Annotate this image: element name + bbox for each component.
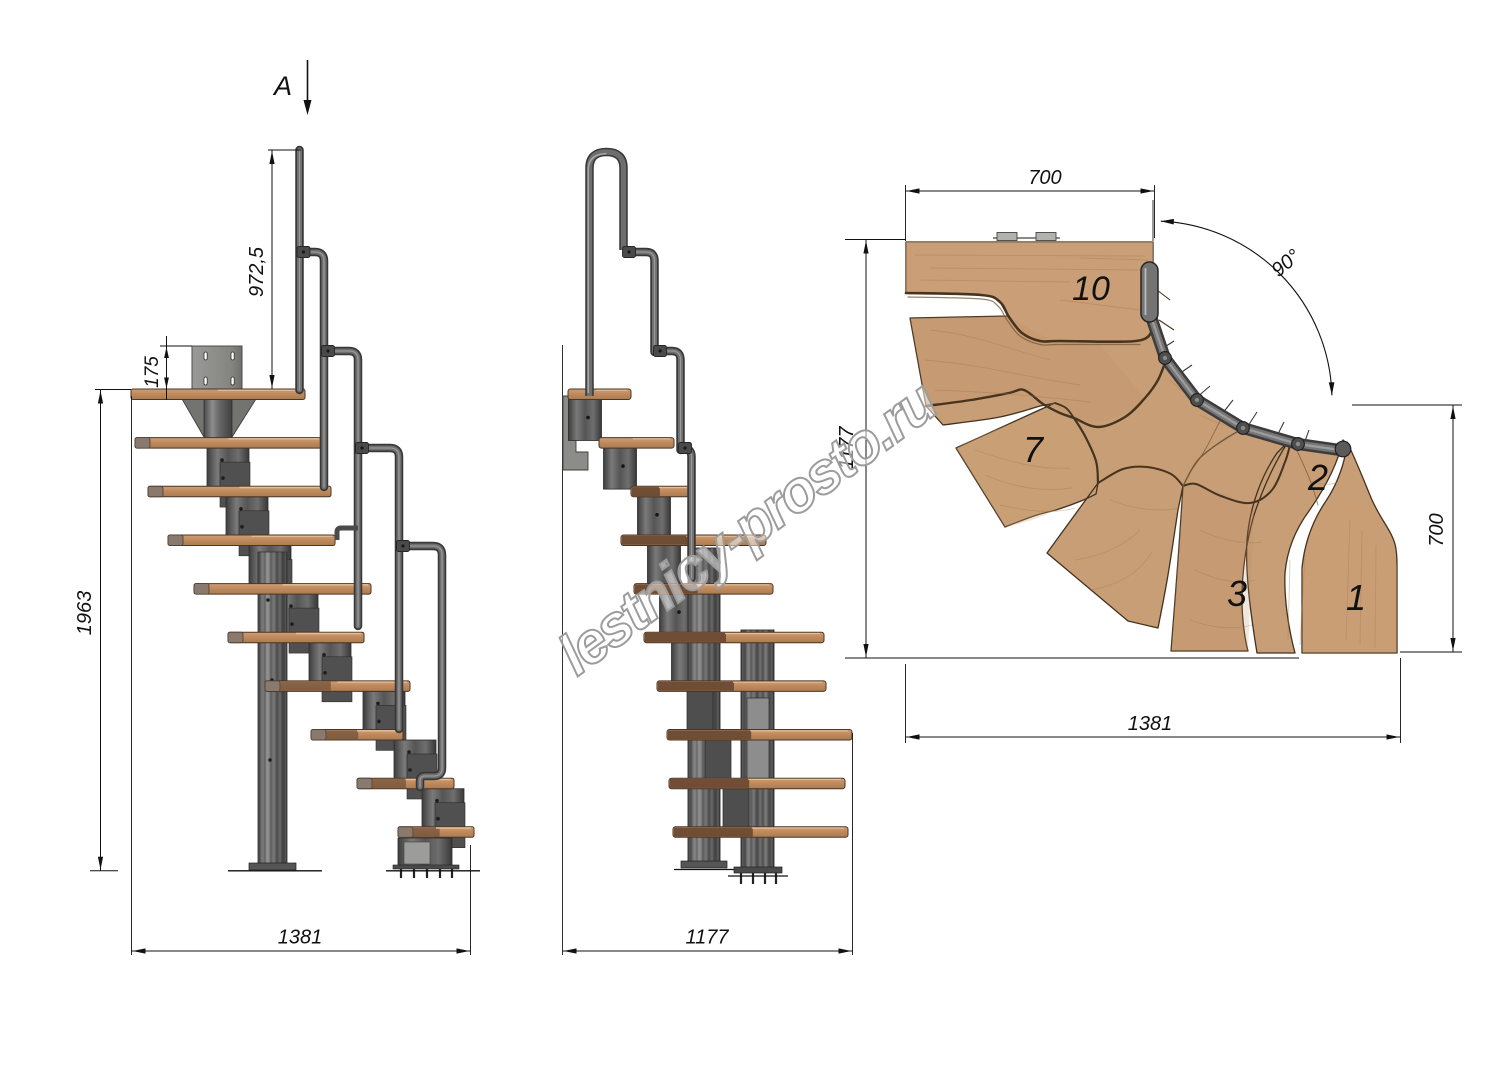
svg-text:1177: 1177: [685, 927, 729, 949]
svg-text:7: 7: [1023, 429, 1045, 470]
svg-text:10: 10: [1072, 270, 1110, 308]
svg-text:175: 175: [142, 356, 163, 388]
svg-text:700: 700: [1426, 513, 1448, 546]
svg-text:700: 700: [1028, 167, 1061, 189]
svg-text:1: 1: [1346, 577, 1366, 618]
svg-text:3: 3: [1227, 573, 1247, 614]
svg-text:A: A: [272, 71, 292, 101]
svg-text:1381: 1381: [1128, 713, 1173, 735]
svg-text:972,5: 972,5: [246, 246, 268, 297]
svg-text:2: 2: [1307, 457, 1328, 498]
svg-text:1963: 1963: [74, 591, 96, 636]
svg-text:1381: 1381: [278, 927, 323, 949]
